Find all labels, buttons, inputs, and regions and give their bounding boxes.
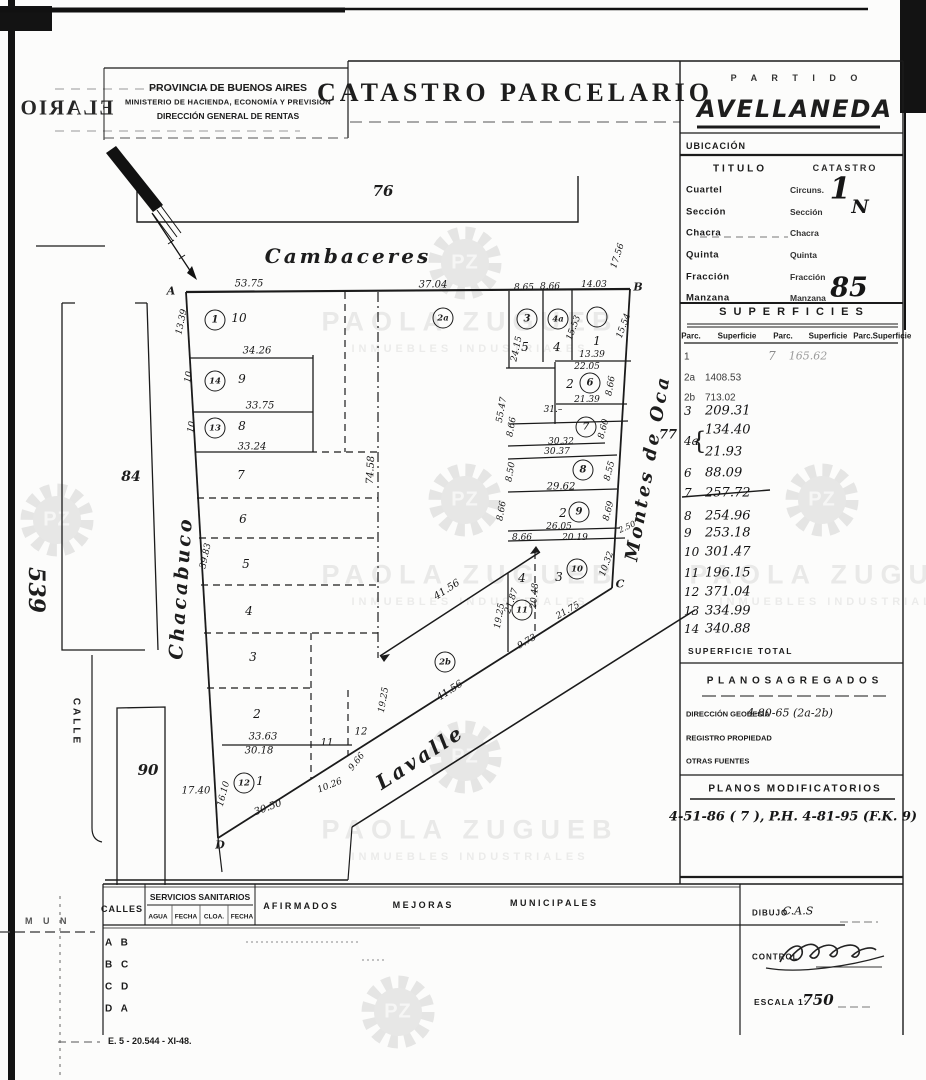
superficie-parcel: 12 — [684, 585, 699, 599]
measurement-label: 8.65 — [514, 283, 534, 293]
superficie-value: 254.96 — [705, 509, 751, 524]
measurement-label: 41.56 — [432, 578, 462, 603]
map-labels-layer: CambaceresChacabucoMontes de OcaLavalleC… — [0, 0, 926, 1080]
measurement-label: 8.66 — [505, 416, 518, 437]
superficie-value: 196.15 — [705, 566, 751, 581]
plot-number: 5 — [242, 557, 250, 571]
plot-number: 1 — [593, 334, 601, 348]
print-reference: E. 5 - 20.544 - XI-48. — [108, 1036, 192, 1046]
fecha-subheader-2: FECHA — [231, 914, 253, 921]
measurement-label: 30.37 — [544, 447, 570, 457]
corner-label: A — [167, 285, 176, 298]
calles-row: D A — [105, 1004, 131, 1015]
col-header-superficie-3: Superficie — [873, 332, 912, 341]
superficie-parcel: 9 — [684, 526, 692, 540]
registro-label: REGISTRO PROPIEDAD — [686, 734, 772, 743]
plot-number: 11 — [321, 738, 334, 749]
fecha-subheader-1: FECHA — [175, 914, 197, 921]
location-row-catastro: Sección — [790, 207, 823, 217]
superficie-parcel: 1 — [684, 352, 690, 363]
superficie-value: 88.09 — [705, 466, 742, 481]
col-header-superficie-2: Superficie — [809, 332, 848, 341]
measurement-label: 8.66 — [604, 375, 617, 396]
location-row-titulo: Manzana — [686, 293, 730, 304]
superficie-value: 371.04 — [705, 585, 751, 600]
block-number: 90 — [138, 761, 159, 779]
measurement-label: 30.32 — [548, 437, 574, 447]
corner-label: C — [616, 578, 625, 591]
geodesia-value: 4-80-65 (2a-2b) — [747, 707, 833, 720]
measurement-label: 10 — [186, 420, 198, 433]
col-header-parc-3: Parc. — [853, 332, 873, 341]
measurement-label: 8.50 — [504, 461, 517, 482]
plot-number: 2 — [253, 707, 261, 721]
measurement-label: 30.18 — [245, 746, 274, 757]
measurement-label: 17.56 — [609, 242, 626, 270]
plot-number: 3 — [249, 650, 257, 664]
partido-name: AVELLANEDA — [697, 95, 893, 123]
superficie-parcel: 13 — [684, 604, 699, 618]
superficie-parcel: 6 — [684, 466, 692, 480]
street-name: Cambaceres — [265, 244, 431, 268]
corner-label: D — [215, 839, 225, 852]
plot-number: 4 — [518, 571, 526, 585]
location-row-titulo: Fracción — [686, 272, 730, 283]
measurement-label: 10 — [183, 370, 195, 383]
location-row-catastro: Fracción — [790, 272, 825, 282]
block-number: 84 — [121, 469, 140, 485]
plot-number: 8 — [238, 419, 246, 433]
measurement-label: 53.75 — [235, 279, 264, 290]
superficie-parcel: 11 — [684, 566, 699, 580]
ink-bleed-text: ELARIO — [19, 96, 114, 121]
titulo-header: TITULO — [713, 164, 767, 175]
col-header-parc-1: Parc. — [681, 332, 701, 341]
corner-label: B — [633, 281, 642, 294]
street-name: CALLE — [71, 698, 82, 746]
cadastral-sheet: PAOLA ZUGUEBINMUEBLES INDUSTRIALESPAOLA … — [0, 0, 926, 1080]
calles-row: C D — [105, 982, 131, 993]
measurement-label: 9.66 — [347, 751, 367, 773]
plot-number: 4 — [553, 340, 561, 354]
parcel-circle: 8 — [573, 460, 594, 481]
measurement-label: 8.66 — [540, 282, 560, 292]
location-row-catastro: Manzana — [790, 293, 826, 303]
measurement-label: 55.47 — [495, 396, 509, 423]
superficie-value: 340.88 — [705, 622, 751, 637]
calles-row: B C — [105, 960, 131, 971]
street-name: Chacabuco — [165, 516, 197, 661]
parcel-circle: 6 — [580, 373, 601, 394]
superficie-parcel: 3 — [684, 404, 692, 418]
superficie-value: 257.72 — [705, 486, 751, 501]
measurement-label: 31.– — [544, 405, 563, 415]
superficie-value: 1408.53 — [705, 373, 741, 384]
superficie-value: 301.47 — [705, 545, 751, 560]
parcel-circle: 2b — [435, 652, 456, 673]
plot-number: 2 — [559, 506, 567, 520]
superficie-value: 253.18 — [705, 526, 751, 541]
parcel-circle: 4a — [548, 309, 569, 330]
parcel-circle: 11 — [512, 600, 533, 621]
planos-modificatorios-value: 4-51-86 ( 7 ), P.H. 4-81-95 (F.K. 9) — [669, 810, 917, 825]
servicios-sanitarios-header: SERVICIOS SANITARIOS — [150, 892, 250, 902]
plot-number: 4 — [245, 604, 253, 618]
control-label: CONTROL — [752, 953, 799, 962]
measurement-label: 74.58 — [365, 455, 377, 484]
location-row-catastro: Quinta — [790, 250, 817, 260]
superficie-parcel: 7 — [684, 486, 692, 500]
page-title: CATASTRO PARCELARIO — [317, 78, 713, 108]
block-number: 76 — [373, 182, 394, 200]
plot-number: 12 — [355, 727, 368, 738]
partido-label: P A R T I D O — [731, 73, 864, 83]
measurement-label: 8.55 — [603, 460, 618, 482]
planos-agregados-title: P L A N O S A G R E G A D O S — [707, 676, 880, 687]
parcel-circle: 2a — [433, 308, 454, 329]
measurement-label: 37.04 — [419, 280, 448, 291]
measurement-label: 30.50 — [253, 798, 284, 818]
plot-number: 10 — [231, 311, 246, 325]
ubicacion-label: UBICACIÓN — [686, 141, 746, 151]
circunscripcion-letter: N — [851, 196, 868, 218]
location-row-catastro: Chacra — [790, 228, 819, 238]
measurement-label: 39.83 — [198, 542, 213, 569]
mejoras-header: M E J O R A S — [393, 900, 452, 910]
measurement-label: 34.26 — [243, 346, 272, 357]
measurement-label: 20.19 — [562, 533, 588, 543]
plot-number: 2 — [566, 377, 574, 391]
measurement-label: 8.60 — [597, 418, 612, 440]
measurement-label: 33.75 — [246, 401, 275, 412]
location-row-titulo: Cuartel — [686, 185, 722, 196]
measurement-label: 21.39 — [574, 395, 600, 405]
parcel-circle: 9 — [569, 502, 590, 523]
measurement-label: 15.54 — [615, 312, 633, 340]
superficie-value: 713.02 — [705, 393, 736, 404]
plot-number: 3 — [555, 570, 563, 584]
measurement-label: 10.26 — [316, 777, 344, 796]
street-name: Montes de Oca — [621, 373, 674, 563]
measurement-label: 8.66 — [512, 533, 532, 543]
escala-value: 750 — [802, 991, 833, 1009]
cloaca-subheader: CLOA. — [204, 914, 224, 921]
agency-line2: MINISTERIO DE HACIENDA, ECONOMÍA Y PREVI… — [125, 98, 331, 107]
parcel-circle: 14 — [205, 371, 226, 392]
superficie-value: 209.31 — [705, 404, 751, 419]
calles-row: A B — [105, 938, 131, 949]
col-header-parc-2: Parc. — [773, 332, 793, 341]
measurement-label: 10.32 — [598, 550, 616, 578]
superficie-parcel: 2b — [684, 393, 695, 404]
calles-header: CALLES — [101, 904, 143, 914]
parcel-circle: 7 — [576, 417, 597, 438]
superficie-total-label: SUPERFICIE TOTAL — [688, 646, 793, 656]
plot-number: 9 — [238, 372, 246, 386]
block-number: 77 — [659, 428, 677, 443]
planos-modificatorios-title: PLANOS MODIFICATORIOS — [708, 784, 881, 795]
superficie-extra-value: 165.62 — [789, 350, 828, 363]
municipales-header: M U N I C I P A L E S — [510, 898, 596, 908]
superficie-parcel: 4a — [684, 434, 699, 448]
measurement-label: 33.24 — [238, 442, 267, 453]
superficie-parcel: 10 — [684, 545, 699, 559]
measurement-label: 8.66 — [495, 500, 508, 521]
measurement-label: 19.25 — [377, 686, 391, 713]
measurement-label: 29.62 — [547, 482, 576, 493]
measurement-label: 14.03 — [581, 280, 607, 290]
superficies-title: S U P E R F I C I E S — [719, 306, 865, 318]
manzana-value: 85 — [830, 273, 868, 304]
plot-number: 6 — [239, 512, 247, 526]
measurement-label: 13.39 — [174, 308, 189, 335]
superficie-parcel: 14 — [684, 622, 699, 636]
mun-label: M U N — [25, 916, 71, 926]
escala-label: ESCALA 1: — [754, 997, 808, 1007]
superficie-value: 21.93 — [705, 445, 742, 460]
parcel-circle — [587, 307, 608, 328]
agency-line1: PROVINCIA DE BUENOS AIRES — [149, 82, 307, 94]
measurement-label: 9.73 — [516, 633, 538, 652]
parcel-circle: 3 — [517, 309, 538, 330]
superficie-value: 134.40 — [705, 423, 751, 438]
otras-fuentes-label: OTRAS FUENTES — [686, 757, 749, 766]
col-header-superficie-1: Superficie — [718, 332, 757, 341]
location-row-titulo: Quinta — [686, 250, 719, 261]
measurement-label: 8.69 — [602, 500, 617, 522]
plot-number: 7 — [237, 468, 245, 482]
measurement-label: 26.05 — [546, 522, 572, 532]
agua-subheader: AGUA — [148, 914, 167, 921]
agency-line3: DIRECCIÓN GENERAL DE RENTAS — [157, 111, 299, 121]
afirmados-header: A F I R M A D O S — [263, 901, 337, 911]
location-row-titulo: Chacra — [686, 228, 721, 239]
block-number: 539 — [23, 567, 49, 613]
parcel-circle: 10 — [567, 559, 588, 580]
plot-number: 1 — [256, 774, 264, 788]
measurement-label: 21.75 — [554, 600, 581, 622]
measurement-label: 41.56 — [435, 679, 465, 704]
measurement-label: 17.40 — [182, 786, 211, 797]
superficie-parcel: 2a — [684, 373, 695, 384]
parcel-circle: 12 — [234, 773, 255, 794]
dibujo-value: C.A.S — [783, 905, 814, 918]
superficie-parcel: 8 — [684, 509, 692, 523]
superficie-value: 334.99 — [705, 604, 751, 619]
measurement-label: 22.05 — [574, 362, 600, 372]
measurement-label: 13.39 — [579, 350, 605, 360]
circunscripcion-value: 1 — [830, 172, 851, 207]
parcel-circle: 13 — [205, 418, 226, 439]
location-row-titulo: Sección — [686, 207, 726, 218]
measurement-label: 33.63 — [249, 732, 278, 743]
superficie-extra-parcel: 7 — [768, 349, 776, 363]
parcel-circle: 1 — [205, 310, 226, 331]
measurement-label: 16.10 — [216, 780, 232, 807]
location-row-catastro: Circuns. — [790, 185, 824, 195]
street-name: Lavalle — [371, 720, 468, 795]
